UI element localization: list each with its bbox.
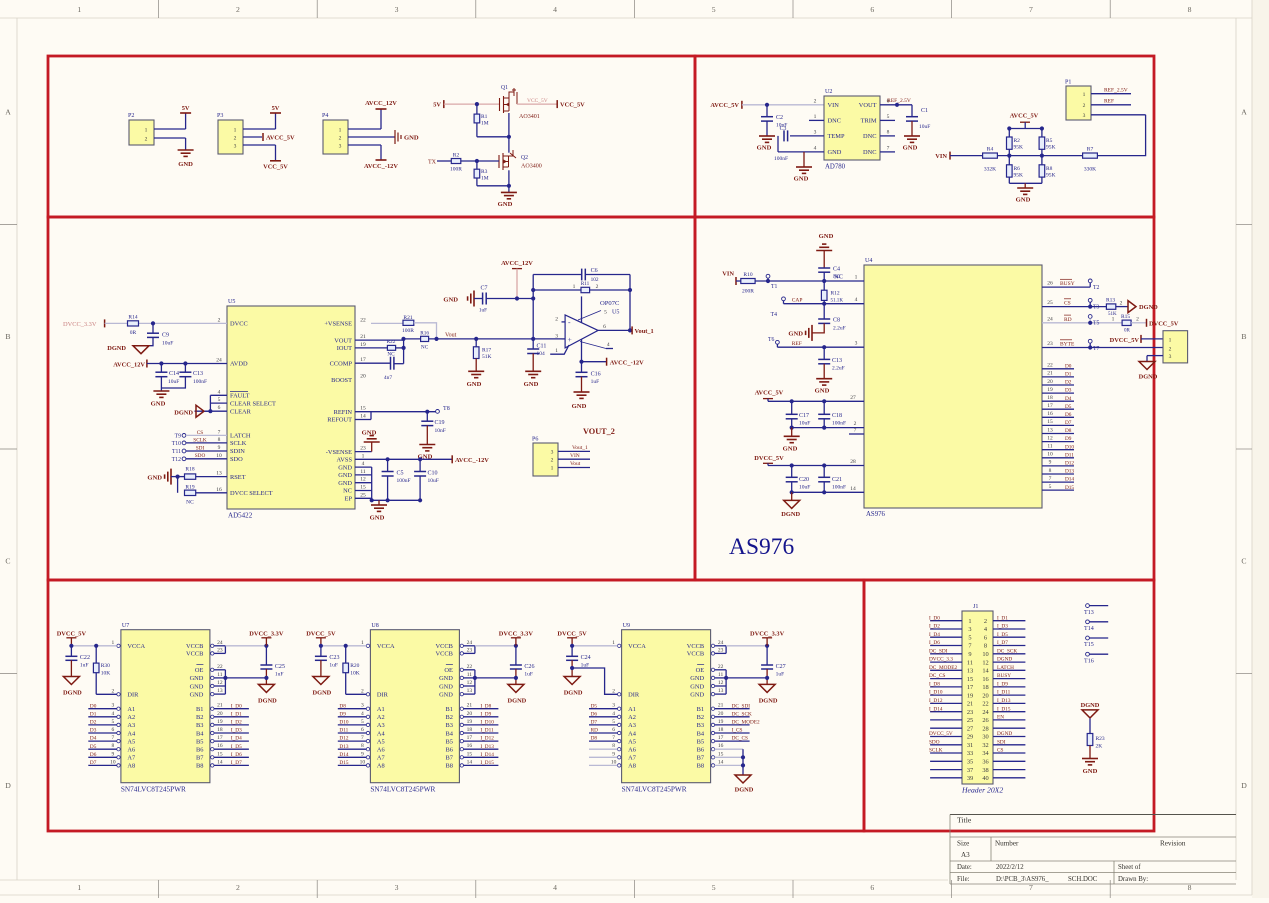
svg-text:I_D9: I_D9 xyxy=(997,682,1008,688)
svg-text:REFOUT: REFOUT xyxy=(327,417,352,424)
svg-text:1M: 1M xyxy=(481,121,489,127)
svg-text:I_CS: I_CS xyxy=(732,728,743,734)
svg-text:D1: D1 xyxy=(1065,372,1072,378)
svg-text:T7: T7 xyxy=(1093,346,1099,352)
svg-text:8: 8 xyxy=(612,743,615,749)
svg-text:DVCC_3.3V: DVCC_3.3V xyxy=(249,630,284,637)
svg-text:B7: B7 xyxy=(697,755,704,762)
svg-text:VOUT: VOUT xyxy=(334,337,352,344)
svg-text:28: 28 xyxy=(850,459,856,465)
svg-text:Vout_1: Vout_1 xyxy=(572,445,588,451)
svg-text:17: 17 xyxy=(467,735,473,741)
svg-text:11: 11 xyxy=(217,672,223,678)
svg-text:C1: C1 xyxy=(921,108,928,114)
svg-text:A2: A2 xyxy=(628,714,636,721)
svg-text:2: 2 xyxy=(1083,103,1086,109)
svg-text:30: 30 xyxy=(982,734,988,741)
svg-text:DC_MODE2: DC_MODE2 xyxy=(929,665,957,671)
svg-text:3: 3 xyxy=(551,450,554,456)
svg-text:Header 20X2: Header 20X2 xyxy=(961,786,1003,795)
svg-text:23: 23 xyxy=(467,647,473,653)
svg-text:5: 5 xyxy=(361,719,364,725)
svg-text:B6: B6 xyxy=(445,747,452,754)
svg-text:R2: R2 xyxy=(1014,138,1021,144)
svg-text:9: 9 xyxy=(361,751,364,757)
svg-text:18: 18 xyxy=(718,727,724,733)
svg-text:1: 1 xyxy=(362,453,365,459)
svg-text:-VSENSE: -VSENSE xyxy=(326,449,352,456)
svg-text:C: C xyxy=(5,557,10,566)
svg-text:D5: D5 xyxy=(90,744,97,750)
svg-text:29: 29 xyxy=(967,734,973,741)
svg-text:R23: R23 xyxy=(1096,736,1105,742)
svg-text:B1: B1 xyxy=(445,706,452,713)
svg-text:DC_SDI: DC_SDI xyxy=(732,703,751,709)
svg-text:DGND: DGND xyxy=(781,511,800,518)
svg-text:C23: C23 xyxy=(329,655,339,661)
svg-text:18: 18 xyxy=(982,684,988,691)
svg-text:I_D2: I_D2 xyxy=(231,720,242,726)
svg-text:36: 36 xyxy=(982,759,988,766)
svg-text:D8: D8 xyxy=(339,703,346,709)
svg-text:2: 2 xyxy=(612,688,615,694)
svg-text:D0: D0 xyxy=(90,703,97,709)
svg-text:C17: C17 xyxy=(799,413,809,419)
svg-text:DGND: DGND xyxy=(258,698,277,705)
svg-text:1: 1 xyxy=(77,5,81,14)
svg-text:AS976: AS976 xyxy=(729,534,795,560)
svg-text:31: 31 xyxy=(967,742,973,749)
svg-text:12: 12 xyxy=(1047,435,1053,441)
svg-text:2022/2/12: 2022/2/12 xyxy=(996,864,1024,871)
svg-text:AVDD: AVDD xyxy=(230,361,248,368)
svg-text:4: 4 xyxy=(218,389,221,395)
svg-text:21: 21 xyxy=(217,703,223,709)
svg-text:I_D15: I_D15 xyxy=(997,706,1011,712)
svg-text:1uF: 1uF xyxy=(524,672,533,678)
svg-text:24: 24 xyxy=(217,640,223,646)
svg-text:DC_CS: DC_CS xyxy=(732,736,748,742)
svg-text:2: 2 xyxy=(1136,317,1139,323)
svg-text:17: 17 xyxy=(718,735,724,741)
svg-text:95K: 95K xyxy=(1046,145,1056,151)
svg-text:R18: R18 xyxy=(185,467,194,473)
svg-text:3: 3 xyxy=(339,144,342,150)
svg-text:DC_CS: DC_CS xyxy=(929,673,945,679)
svg-text:AD5422: AD5422 xyxy=(228,512,253,520)
svg-text:GND: GND xyxy=(467,381,482,388)
svg-text:35: 35 xyxy=(967,759,973,766)
svg-text:D2: D2 xyxy=(1065,380,1072,386)
svg-text:24: 24 xyxy=(718,640,724,646)
svg-text:0R: 0R xyxy=(130,330,137,336)
svg-text:C: C xyxy=(1241,557,1246,566)
svg-text:SCH.DOC: SCH.DOC xyxy=(1068,876,1098,883)
svg-text:22: 22 xyxy=(982,701,988,708)
svg-text:B3: B3 xyxy=(196,722,203,729)
svg-text:GND: GND xyxy=(338,472,352,479)
svg-text:A7: A7 xyxy=(377,755,385,762)
svg-text:6: 6 xyxy=(603,324,606,330)
svg-text:C16: C16 xyxy=(591,372,601,378)
svg-text:B4: B4 xyxy=(196,730,204,737)
svg-text:D9: D9 xyxy=(1065,436,1072,442)
svg-text:TEMP: TEMP xyxy=(828,133,845,140)
svg-text:B3: B3 xyxy=(445,722,452,729)
svg-text:19: 19 xyxy=(217,719,223,725)
svg-text:GND: GND xyxy=(690,691,704,698)
svg-text:OE: OE xyxy=(195,667,204,674)
svg-text:20: 20 xyxy=(467,711,473,717)
svg-text:R11: R11 xyxy=(581,281,590,287)
svg-text:GND: GND xyxy=(1083,768,1098,775)
svg-text:Q1: Q1 xyxy=(501,85,508,91)
svg-text:B1: B1 xyxy=(697,706,704,713)
svg-text:1: 1 xyxy=(145,128,148,134)
svg-text:GND: GND xyxy=(783,446,798,453)
svg-text:10nF: 10nF xyxy=(435,428,446,434)
svg-text:4: 4 xyxy=(362,461,365,467)
svg-text:10K: 10K xyxy=(101,671,111,677)
svg-text:A3: A3 xyxy=(127,722,135,729)
svg-text:100nF: 100nF xyxy=(832,484,846,490)
svg-text:DGND: DGND xyxy=(174,410,193,417)
svg-text:SDO: SDO xyxy=(929,739,940,745)
svg-text:6: 6 xyxy=(361,727,364,733)
svg-text:3: 3 xyxy=(1083,113,1086,119)
svg-text:GND: GND xyxy=(370,515,385,522)
svg-text:VIN: VIN xyxy=(722,270,734,277)
svg-text:D12: D12 xyxy=(339,736,348,742)
svg-text:D4: D4 xyxy=(90,736,97,742)
svg-text:CS: CS xyxy=(197,430,204,436)
svg-text:A4: A4 xyxy=(628,730,637,737)
svg-text:P2: P2 xyxy=(128,113,134,119)
svg-text:R6: R6 xyxy=(1014,166,1021,172)
svg-text:D14: D14 xyxy=(1065,477,1074,483)
svg-text:B2: B2 xyxy=(445,714,452,721)
svg-text:D0: D0 xyxy=(1065,363,1072,369)
svg-text:SN74LVC8T245PWR: SN74LVC8T245PWR xyxy=(370,786,435,794)
svg-text:D13: D13 xyxy=(1065,469,1074,475)
svg-text:12: 12 xyxy=(360,477,366,483)
svg-text:DVCC_5V: DVCC_5V xyxy=(57,630,87,637)
svg-text:SDO: SDO xyxy=(230,456,243,463)
svg-text:13: 13 xyxy=(1047,427,1053,433)
svg-text:D5: D5 xyxy=(591,703,598,709)
svg-text:B4: B4 xyxy=(445,730,453,737)
svg-text:I_D11: I_D11 xyxy=(480,728,494,734)
svg-text:OP07C: OP07C xyxy=(600,300,620,307)
svg-text:1: 1 xyxy=(855,275,858,281)
svg-text:B6: B6 xyxy=(697,747,704,754)
svg-text:DGND: DGND xyxy=(63,690,82,697)
svg-text:A1: A1 xyxy=(628,706,636,713)
svg-text:SCLK: SCLK xyxy=(193,437,207,443)
svg-text:D13: D13 xyxy=(339,744,348,750)
svg-text:14: 14 xyxy=(360,414,366,420)
svg-text:2: 2 xyxy=(234,136,237,142)
svg-text:15: 15 xyxy=(1047,419,1053,425)
svg-text:51.1K: 51.1K xyxy=(831,298,844,304)
svg-text:2: 2 xyxy=(361,688,364,694)
svg-text:VCCA: VCCA xyxy=(628,643,646,650)
svg-text:B8: B8 xyxy=(445,763,452,770)
svg-text:DNC: DNC xyxy=(863,149,876,156)
svg-text:AVCC_5V: AVCC_5V xyxy=(266,135,295,142)
svg-text:T11: T11 xyxy=(172,449,181,455)
svg-text:10uF: 10uF xyxy=(799,484,810,490)
svg-text:DVCC_5V: DVCC_5V xyxy=(929,731,953,737)
svg-text:R4: R4 xyxy=(987,147,994,153)
svg-text:DVCC SELECT: DVCC SELECT xyxy=(230,490,273,497)
svg-text:VCC_5V: VCC_5V xyxy=(560,102,585,109)
svg-text:7: 7 xyxy=(112,735,115,741)
svg-text:15: 15 xyxy=(467,751,473,757)
svg-text:8: 8 xyxy=(984,643,987,650)
svg-text:3: 3 xyxy=(395,5,399,14)
svg-text:VCCB: VCCB xyxy=(436,651,453,658)
svg-text:D7: D7 xyxy=(90,760,97,766)
svg-text:GND: GND xyxy=(690,683,704,690)
svg-text:10uF: 10uF xyxy=(162,341,173,347)
svg-text:C18: C18 xyxy=(832,413,842,419)
svg-text:A4: A4 xyxy=(127,730,136,737)
svg-text:21: 21 xyxy=(718,703,724,709)
svg-text:AVCC_-12V: AVCC_-12V xyxy=(610,359,644,366)
svg-text:R21: R21 xyxy=(403,315,412,321)
svg-text:DVCC_3.3V: DVCC_3.3V xyxy=(63,321,97,328)
svg-text:15: 15 xyxy=(360,406,366,412)
svg-text:GND: GND xyxy=(828,149,842,156)
svg-text:+: + xyxy=(568,335,572,344)
svg-text:37: 37 xyxy=(967,767,973,774)
svg-text:DC_SCK: DC_SCK xyxy=(997,648,1017,654)
svg-text:DGND: DGND xyxy=(1139,374,1158,381)
svg-text:13: 13 xyxy=(967,668,973,675)
svg-text:R15: R15 xyxy=(1121,314,1130,320)
svg-text:10K: 10K xyxy=(350,671,360,677)
svg-text:EN: EN xyxy=(997,715,1004,721)
svg-text:3: 3 xyxy=(395,883,399,892)
svg-text:2.2uF: 2.2uF xyxy=(833,326,846,332)
svg-text:C20: C20 xyxy=(799,477,809,483)
svg-text:20: 20 xyxy=(1047,379,1053,385)
svg-text:VCCB: VCCB xyxy=(687,643,704,650)
svg-text:A7: A7 xyxy=(127,755,135,762)
svg-text:GND: GND xyxy=(151,401,166,408)
svg-text:R17: R17 xyxy=(482,348,491,354)
svg-text:C25: C25 xyxy=(275,664,285,670)
svg-text:P4: P4 xyxy=(322,113,328,119)
svg-text:13: 13 xyxy=(216,471,222,477)
svg-text:D6: D6 xyxy=(90,752,97,758)
svg-text:Q2: Q2 xyxy=(521,155,528,161)
svg-text:DGND: DGND xyxy=(1139,304,1158,311)
svg-text:GND: GND xyxy=(362,430,377,437)
svg-text:100R: 100R xyxy=(450,167,462,173)
svg-text:DGND: DGND xyxy=(564,690,583,697)
svg-text:DVCC_3.3V: DVCC_3.3V xyxy=(750,630,785,637)
svg-text:I_D13: I_D13 xyxy=(480,744,494,750)
svg-text:GND: GND xyxy=(190,691,204,698)
svg-text:DVCC_5V: DVCC_5V xyxy=(557,630,587,637)
svg-text:C13: C13 xyxy=(832,358,842,364)
svg-text:2: 2 xyxy=(555,317,558,323)
svg-text:4: 4 xyxy=(553,883,557,892)
svg-text:AVCC_-12V: AVCC_-12V xyxy=(455,457,489,464)
svg-text:EP: EP xyxy=(345,496,353,503)
svg-text:DVCC_5V: DVCC_5V xyxy=(1149,320,1179,327)
svg-text:D:\PCB_3\AS976_: D:\PCB_3\AS976_ xyxy=(996,876,1049,883)
svg-text:24: 24 xyxy=(1047,316,1053,322)
svg-text:2: 2 xyxy=(854,421,857,427)
svg-text:11: 11 xyxy=(467,672,473,678)
svg-text:21: 21 xyxy=(360,334,366,340)
svg-text:I_D12: I_D12 xyxy=(929,698,943,704)
svg-text:SN74LVC8T245PWR: SN74LVC8T245PWR xyxy=(121,786,186,794)
svg-text:DNC: DNC xyxy=(828,118,841,125)
svg-text:A4: A4 xyxy=(377,730,386,737)
svg-text:1: 1 xyxy=(234,128,237,134)
svg-text:DVCC_3.3V: DVCC_3.3V xyxy=(499,630,534,637)
svg-text:10: 10 xyxy=(110,759,116,765)
svg-text:1: 1 xyxy=(1169,337,1172,343)
svg-text:AD780: AD780 xyxy=(825,164,846,171)
svg-text:104: 104 xyxy=(537,351,546,357)
svg-text:B6: B6 xyxy=(196,747,203,754)
svg-text:10: 10 xyxy=(216,453,222,459)
svg-text:DIR: DIR xyxy=(377,692,389,699)
svg-text:11: 11 xyxy=(360,469,366,475)
svg-text:2: 2 xyxy=(339,136,342,142)
svg-text:U5: U5 xyxy=(612,310,619,316)
svg-text:A5: A5 xyxy=(377,738,385,745)
svg-text:R13: R13 xyxy=(1106,298,1115,304)
svg-text:15: 15 xyxy=(718,751,724,757)
svg-text:2: 2 xyxy=(236,883,240,892)
svg-text:NC: NC xyxy=(387,352,395,358)
svg-text:B7: B7 xyxy=(196,755,203,762)
svg-text:R8: R8 xyxy=(1046,166,1053,172)
svg-text:GND: GND xyxy=(443,297,458,304)
svg-text:5: 5 xyxy=(887,114,890,120)
svg-text:R30: R30 xyxy=(101,663,110,669)
svg-text:3: 3 xyxy=(855,341,858,347)
svg-text:3: 3 xyxy=(555,334,558,340)
svg-text:7: 7 xyxy=(854,428,857,434)
svg-text:1uF: 1uF xyxy=(776,672,785,678)
svg-text:AVCC_-12V: AVCC_-12V xyxy=(364,163,398,170)
svg-text:1M: 1M xyxy=(481,176,489,182)
svg-text:4: 4 xyxy=(814,146,817,152)
svg-text:B: B xyxy=(1241,332,1246,341)
svg-text:2K: 2K xyxy=(1096,744,1103,750)
svg-text:A1: A1 xyxy=(127,706,135,713)
svg-text:R19: R19 xyxy=(185,485,194,491)
svg-text:25: 25 xyxy=(360,492,366,498)
svg-text:8: 8 xyxy=(218,437,221,443)
svg-text:Sheet of: Sheet of xyxy=(1118,864,1141,871)
svg-text:R14: R14 xyxy=(128,315,137,321)
svg-text:AVCC_5V: AVCC_5V xyxy=(710,102,739,109)
svg-text:332K: 332K xyxy=(984,167,996,173)
svg-text:U5: U5 xyxy=(228,299,235,305)
svg-text:10: 10 xyxy=(611,759,617,765)
svg-text:1: 1 xyxy=(112,640,115,646)
svg-text:100R: 100R xyxy=(402,328,414,334)
svg-text:Revision: Revision xyxy=(1160,840,1186,848)
svg-text:I_D11: I_D11 xyxy=(997,690,1011,696)
svg-text:DVCC_5V: DVCC_5V xyxy=(306,630,336,637)
svg-text:A6: A6 xyxy=(127,747,135,754)
svg-text:File:: File: xyxy=(957,876,970,883)
svg-text:I_D12: I_D12 xyxy=(480,736,494,742)
svg-text:Size: Size xyxy=(957,840,969,848)
svg-text:17: 17 xyxy=(360,357,366,363)
svg-text:C24: C24 xyxy=(581,655,591,661)
svg-text:5: 5 xyxy=(218,397,221,403)
svg-text:14: 14 xyxy=(467,759,473,765)
svg-text:8: 8 xyxy=(361,743,364,749)
svg-text:39: 39 xyxy=(967,775,973,782)
svg-text:DNC: DNC xyxy=(863,133,876,140)
svg-text:A2: A2 xyxy=(127,714,135,721)
svg-text:VCC_5V: VCC_5V xyxy=(527,98,548,104)
svg-text:10uF: 10uF xyxy=(168,379,179,385)
svg-text:C8: C8 xyxy=(833,318,840,324)
svg-text:DC_MODE2: DC_MODE2 xyxy=(732,720,760,726)
svg-text:12: 12 xyxy=(467,680,473,686)
svg-text:102: 102 xyxy=(591,277,599,283)
svg-text:GND: GND xyxy=(190,683,204,690)
svg-text:22: 22 xyxy=(360,317,366,323)
svg-text:P1: P1 xyxy=(1065,80,1071,86)
svg-text:GND: GND xyxy=(338,464,352,471)
svg-text:SDIN: SDIN xyxy=(230,448,245,455)
svg-text:21: 21 xyxy=(967,701,973,708)
svg-text:18: 18 xyxy=(217,727,223,733)
svg-text:5V: 5V xyxy=(182,105,190,112)
svg-text:17: 17 xyxy=(967,684,973,691)
svg-text:26: 26 xyxy=(982,717,988,724)
svg-text:DGND: DGND xyxy=(508,698,527,705)
svg-text:C14: C14 xyxy=(169,371,179,377)
svg-text:D: D xyxy=(1241,781,1247,790)
svg-text:14: 14 xyxy=(982,668,989,675)
svg-text:R10: R10 xyxy=(743,272,752,278)
svg-text:2: 2 xyxy=(1120,301,1123,307)
svg-text:I_D3: I_D3 xyxy=(997,624,1008,630)
svg-text:SDI: SDI xyxy=(196,445,205,451)
svg-text:B8: B8 xyxy=(697,763,704,770)
svg-text:1: 1 xyxy=(361,640,364,646)
svg-text:B3: B3 xyxy=(697,722,704,729)
svg-text:3: 3 xyxy=(1169,354,1172,360)
svg-text:7: 7 xyxy=(218,429,221,435)
svg-text:23: 23 xyxy=(360,446,366,452)
svg-text:B7: B7 xyxy=(445,755,452,762)
svg-text:19: 19 xyxy=(1047,387,1053,393)
svg-text:330K: 330K xyxy=(1084,167,1096,173)
svg-text:11: 11 xyxy=(718,672,724,678)
svg-text:20: 20 xyxy=(360,374,366,380)
svg-text:R5: R5 xyxy=(1046,138,1053,144)
svg-text:D7: D7 xyxy=(1065,420,1072,426)
svg-text:REF_2.5V: REF_2.5V xyxy=(1104,88,1128,94)
svg-text:FAULT: FAULT xyxy=(230,393,250,400)
svg-text:VOUT_2: VOUT_2 xyxy=(583,427,615,436)
